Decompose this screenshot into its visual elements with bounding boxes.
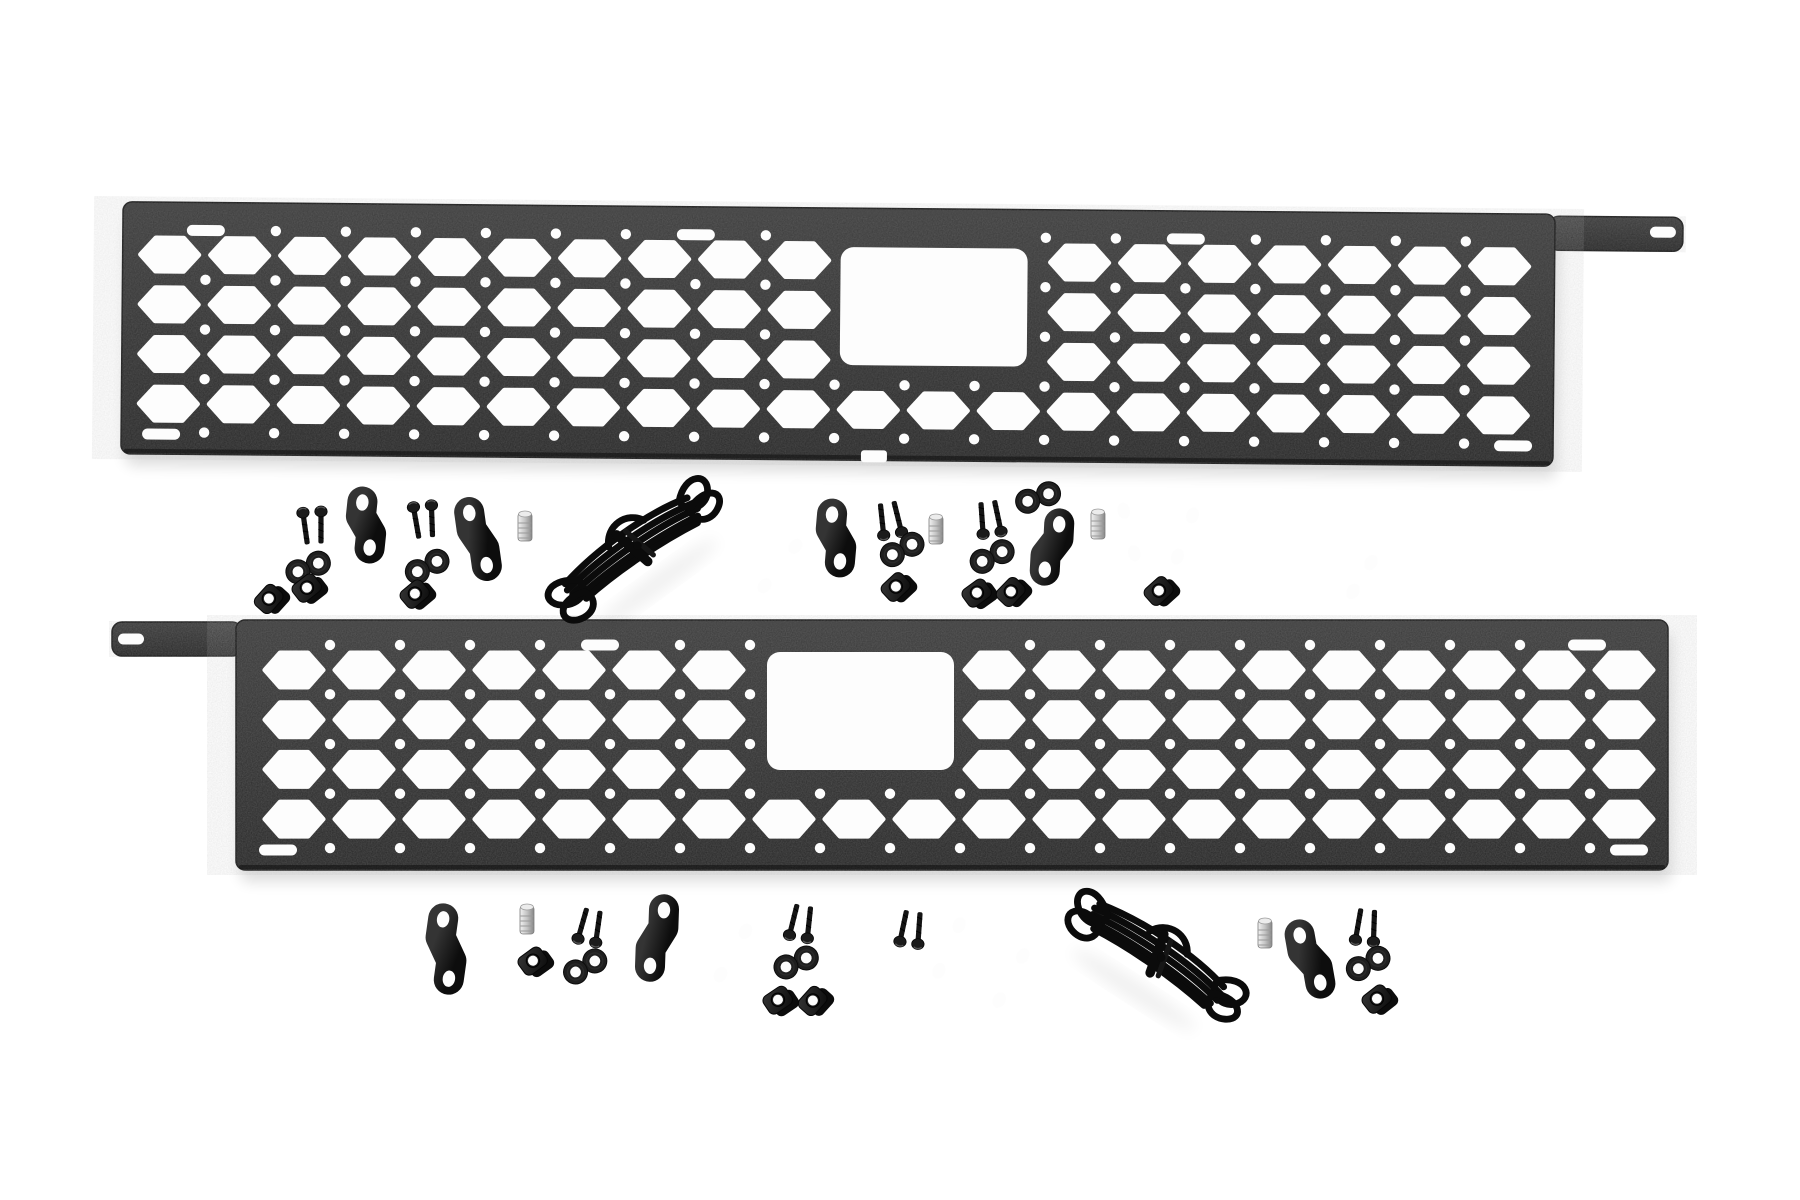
mounting-tab: [1549, 216, 1683, 251]
mounting-tab: [112, 622, 242, 656]
screw: [406, 501, 425, 540]
clip-nut: [1138, 569, 1186, 614]
screw: [589, 910, 606, 949]
z-bracket: [644, 901, 671, 974]
washer-pair: [966, 537, 1018, 577]
clip-nut: [758, 981, 803, 1023]
clip-nut: [875, 565, 923, 610]
screw: [296, 506, 313, 545]
z-bracket: [821, 506, 851, 570]
molle-panel-top: [121, 202, 1683, 480]
accessory-window-cutout: [840, 247, 1028, 367]
screw-pair: [1348, 907, 1383, 948]
washer-pair: [559, 945, 612, 987]
clip-nut: [513, 941, 559, 984]
screw-pair: [782, 902, 819, 945]
clip-nut: [1357, 978, 1404, 1021]
flat-bracket: [1116, 501, 1143, 563]
screw: [911, 912, 926, 950]
washer-pair: [1342, 943, 1394, 984]
product-photo-molle-panel-kit: [0, 0, 1800, 1200]
screw: [975, 502, 990, 540]
tab-slot-hole: [118, 634, 144, 645]
screw: [315, 506, 327, 543]
clip-nut: [792, 978, 841, 1025]
accessory-window-cutout: [767, 652, 954, 770]
flat-bracket: [755, 536, 806, 596]
screw: [1367, 910, 1381, 948]
tab-slot-hole: [1650, 227, 1676, 238]
threaded-stud: [1091, 509, 1105, 539]
flat-bracket: [990, 946, 1032, 1010]
clip-nut: [248, 576, 297, 623]
threaded-stud: [1258, 918, 1272, 948]
screw-pair: [893, 909, 929, 951]
screw: [1348, 907, 1367, 946]
scene-svg: [0, 0, 1800, 1200]
threaded-stud: [929, 514, 943, 544]
z-bracket: [351, 494, 382, 557]
flat-bracket: [711, 921, 755, 985]
screw: [801, 906, 817, 944]
clip-nut: [394, 573, 441, 617]
washer-pair: [770, 943, 822, 982]
threaded-stud: [520, 904, 534, 934]
screw: [425, 500, 439, 538]
screw: [782, 903, 803, 942]
screw: [571, 906, 593, 945]
flat-bracket: [930, 915, 968, 981]
z-bracket: [1038, 515, 1066, 579]
screw: [888, 500, 909, 539]
flat-bracket: [1169, 506, 1201, 567]
z-bracket: [428, 910, 464, 987]
screw: [893, 909, 913, 948]
screw-pair: [406, 499, 441, 540]
flat-bracket: [1343, 552, 1380, 601]
screw-pair: [296, 505, 330, 545]
z-bracket: [1292, 924, 1328, 994]
z-bracket: [462, 503, 494, 576]
threaded-stud: [518, 511, 532, 541]
screw-pair: [570, 906, 608, 950]
screw: [874, 503, 890, 541]
cord-bundle: [1047, 876, 1257, 1052]
screw-pair: [972, 499, 1008, 541]
screw: [988, 499, 1008, 538]
washer-pair: [401, 546, 453, 587]
molle-panel-bottom: [112, 620, 1672, 882]
